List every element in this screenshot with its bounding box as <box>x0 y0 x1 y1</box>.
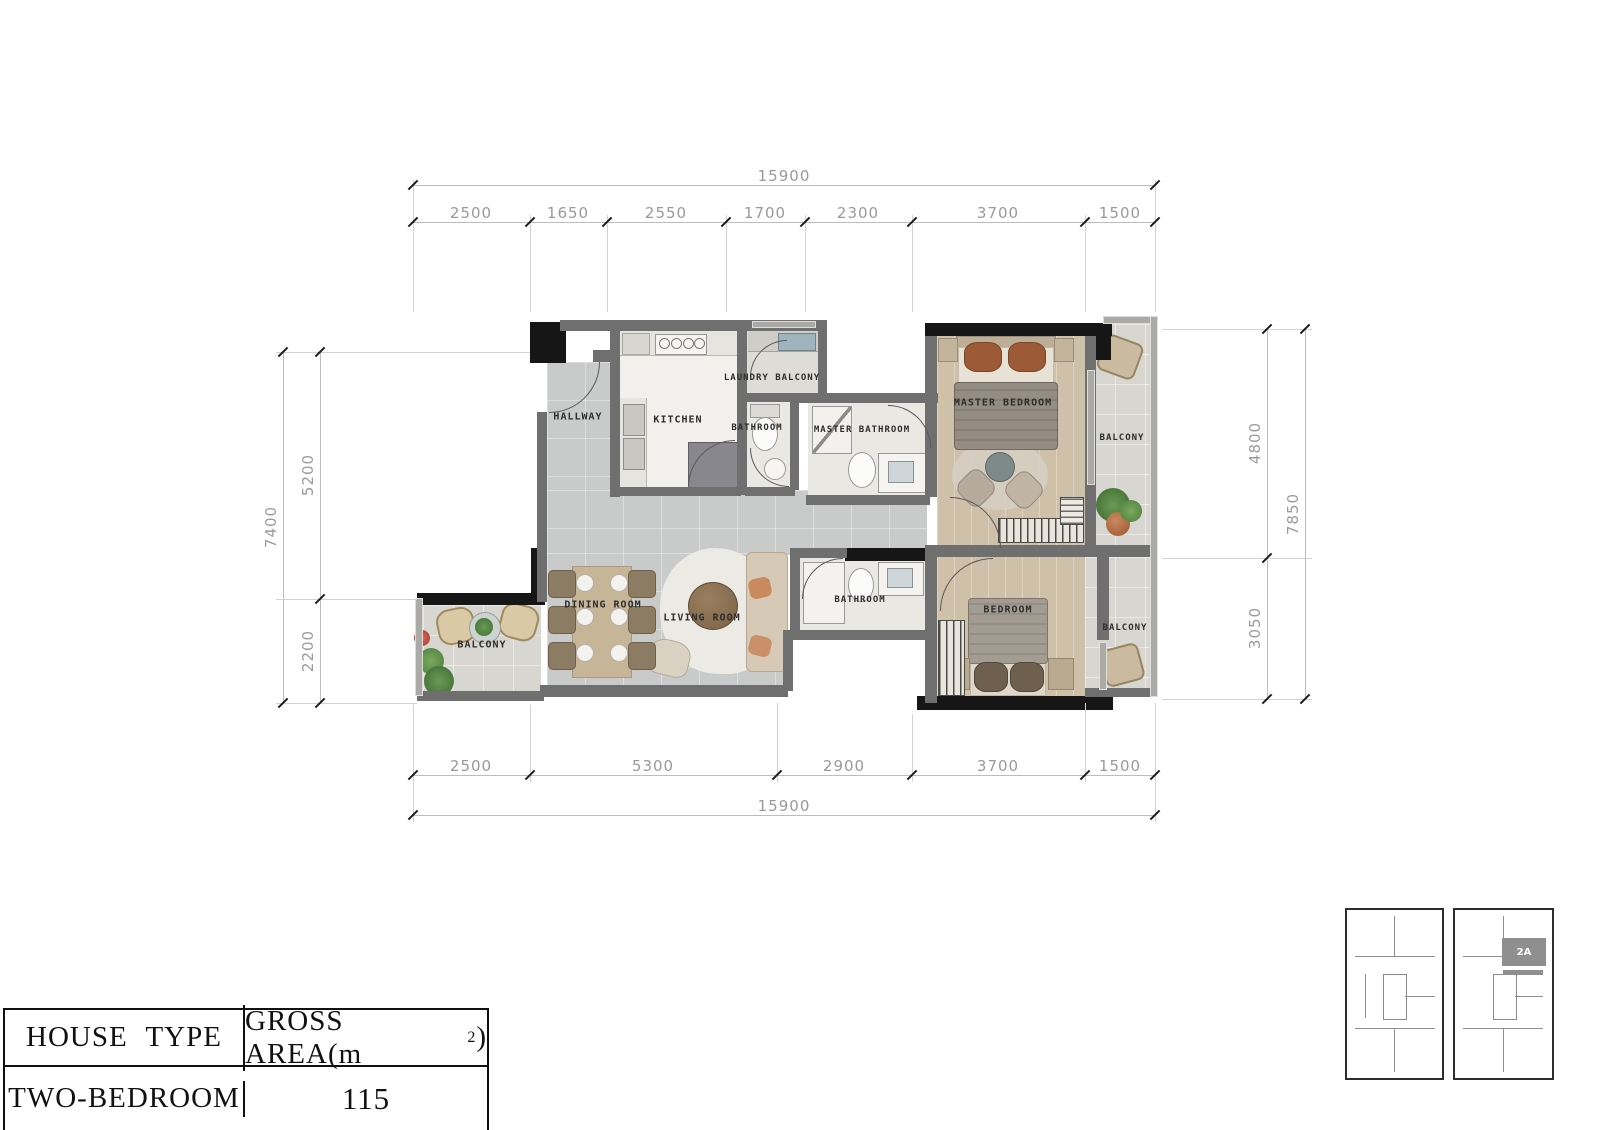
room-label-bathroom-lower: BATHROOM <box>834 595 885 605</box>
extension-line <box>726 215 727 312</box>
kitchen-sink-icon <box>623 438 645 470</box>
room-label-bedroom: BEDROOM <box>983 605 1032 616</box>
nightstand-icon <box>1048 658 1074 690</box>
extension-line <box>1162 558 1312 559</box>
dim-label: 2500 <box>450 204 492 222</box>
wall-segment <box>417 593 544 605</box>
extension-line <box>805 215 806 312</box>
pillow-icon <box>1008 342 1046 372</box>
plate-icon <box>576 644 594 662</box>
floor-plan-page: HALLWAY KITCHEN LAUNDRY BALCONY BATHROOM… <box>0 0 1600 1130</box>
dim-line <box>413 185 1155 186</box>
dim-label: 1500 <box>1099 204 1141 222</box>
pillow-icon <box>1010 662 1044 692</box>
extension-line <box>1085 703 1086 782</box>
house-type-value: TWO-BEDROOM <box>5 1082 243 1115</box>
dining-chair-icon <box>628 642 656 670</box>
burner-icon <box>659 338 670 349</box>
extension-line <box>276 352 530 353</box>
pillow-icon <box>964 342 1002 372</box>
burner-icon <box>694 338 705 349</box>
window-wall <box>752 321 816 328</box>
dim-label: 2200 <box>299 630 317 672</box>
window-wall <box>1150 316 1158 697</box>
dim-label: 15900 <box>758 797 811 815</box>
extension-line <box>530 215 531 312</box>
plant-icon <box>1120 500 1142 522</box>
round-table-icon <box>985 452 1015 482</box>
kitchen-corner-unit <box>622 333 650 355</box>
dim-label: 2550 <box>645 204 687 222</box>
info-table: HOUSE TYPE GROSS AREA(m2) TWO-BEDROOM 11… <box>3 1008 489 1130</box>
room-label-bathroom-upper: BATHROOM <box>731 423 782 433</box>
key-plan-line <box>1394 1028 1395 1072</box>
dim-label: 7850 <box>1284 493 1302 535</box>
highlighted-unit-strip <box>1503 970 1543 975</box>
wall-segment <box>783 636 793 691</box>
window-wall <box>1099 642 1107 690</box>
extension-line <box>1162 329 1312 330</box>
key-plan-building-left <box>1345 908 1444 1080</box>
wall-segment <box>417 691 544 701</box>
dim-label: 3700 <box>977 757 1019 775</box>
plate-icon <box>610 644 628 662</box>
room-label-dining-room: DINING ROOM <box>564 600 641 611</box>
key-plan-line <box>1365 974 1366 1018</box>
extension-line <box>413 705 414 822</box>
key-plan-line <box>1503 1028 1504 1072</box>
dim-label: 4800 <box>1246 422 1264 464</box>
cabinet-icon <box>1060 497 1084 525</box>
extension-line <box>777 703 778 782</box>
dim-line <box>1305 329 1306 699</box>
wardrobe-icon <box>938 620 965 696</box>
key-plan-line <box>1355 1028 1435 1029</box>
room-label-balcony-upper-right: BALCONY <box>1100 433 1145 443</box>
vanity-sink-icon <box>887 568 913 588</box>
key-plan-core <box>1383 974 1407 1020</box>
extension-line <box>912 215 913 312</box>
info-table-value-row: TWO-BEDROOM 115 <box>5 1067 487 1130</box>
plate-icon <box>610 574 628 592</box>
key-plan-line <box>1355 956 1435 957</box>
dim-label: 2300 <box>837 204 879 222</box>
burner-icon <box>683 338 694 349</box>
wall-segment <box>790 556 800 638</box>
dim-label: 5300 <box>632 757 674 775</box>
dining-chair-icon <box>628 570 656 598</box>
room-label-balcony-left: BALCONY <box>457 640 506 651</box>
dim-label: 1700 <box>744 204 786 222</box>
key-plan-line <box>1394 916 1395 956</box>
wall-segment <box>818 320 827 400</box>
key-plan-core <box>1493 974 1517 1020</box>
dim-label: 1650 <box>547 204 589 222</box>
dining-chair-icon <box>548 642 576 670</box>
wall-segment <box>537 412 547 602</box>
wall-segment <box>845 548 937 561</box>
house-type-header: HOUSE TYPE <box>5 1021 243 1054</box>
room-label-master-bathroom: MASTER BATHROOM <box>814 425 910 435</box>
key-plan-line <box>1405 996 1435 997</box>
kitchen-sink-icon <box>623 404 645 436</box>
room-label-hallway: HALLWAY <box>553 412 602 423</box>
dim-label: 2900 <box>823 757 865 775</box>
gross-area-sup: 2 <box>467 1029 476 1047</box>
room-label-kitchen: KITCHEN <box>653 415 702 426</box>
wall-segment <box>610 331 620 497</box>
key-plan: 2A <box>1340 900 1565 1085</box>
wall-segment <box>737 331 747 495</box>
dim-line <box>413 815 1155 816</box>
dim-line <box>1267 329 1268 699</box>
extension-line <box>1155 703 1156 822</box>
plate-icon <box>576 574 594 592</box>
dim-label: 2500 <box>450 757 492 775</box>
gross-area-prefix: GROSS AREA(m <box>245 1005 467 1071</box>
room-label-balcony-lower-right: BALCONY <box>1103 623 1148 633</box>
room-label-master-bedroom: MASTER BEDROOM <box>954 398 1052 409</box>
dim-line <box>320 352 321 703</box>
wall-segment <box>925 555 937 703</box>
extension-line <box>1155 180 1156 312</box>
toilet-tank-icon <box>750 404 780 418</box>
wall-segment <box>1096 330 1111 360</box>
extension-line <box>1162 699 1312 700</box>
toilet-icon <box>848 452 876 488</box>
extension-line <box>276 703 417 704</box>
plant-icon <box>475 618 493 636</box>
window-wall <box>415 598 423 696</box>
wall-segment <box>917 696 1113 710</box>
dim-label: 3700 <box>977 204 1019 222</box>
dining-chair-icon <box>548 570 576 598</box>
wall-segment <box>925 336 937 497</box>
extension-line <box>276 599 417 600</box>
room-label-laundry-balcony: LAUNDRY BALCONY <box>724 373 820 383</box>
plate-icon <box>576 608 594 626</box>
gross-area-value: 115 <box>243 1081 487 1117</box>
room-label-living-room: LIVING ROOM <box>663 613 740 624</box>
dim-line <box>283 352 284 703</box>
key-plan-line <box>1515 996 1543 997</box>
dim-label: 7400 <box>262 506 280 548</box>
blanket <box>954 382 1058 450</box>
burner-icon <box>671 338 682 349</box>
highlighted-unit-2a: 2A <box>1502 938 1546 966</box>
dim-label: 3050 <box>1246 607 1264 649</box>
gross-area-header: GROSS AREA(m2) <box>243 1005 487 1071</box>
wall-segment <box>925 323 1112 336</box>
wall-segment <box>745 487 795 496</box>
extension-line <box>413 180 414 312</box>
extension-line <box>607 215 608 312</box>
dim-label: 15900 <box>758 167 811 185</box>
gross-area-suffix: ) <box>476 1021 487 1054</box>
dim-label: 1500 <box>1099 757 1141 775</box>
pillow-icon <box>974 662 1008 692</box>
info-table-header-row: HOUSE TYPE GROSS AREA(m2) <box>5 1010 487 1067</box>
window-wall <box>1087 370 1095 485</box>
wall-segment <box>1085 688 1158 697</box>
wall-segment <box>790 400 799 490</box>
wall-segment <box>806 495 930 505</box>
nightstand-icon <box>1054 338 1074 362</box>
plate-icon <box>610 608 628 626</box>
dim-line <box>413 775 1155 776</box>
wall-segment <box>798 393 938 403</box>
vanity-sink-icon <box>888 461 914 483</box>
dim-line <box>413 222 1155 223</box>
wall-segment <box>540 685 788 697</box>
extension-line <box>530 705 531 782</box>
extension-line <box>1085 215 1086 312</box>
dim-label: 5200 <box>299 454 317 496</box>
key-plan-building-right: 2A <box>1453 908 1554 1080</box>
wall-segment <box>617 487 741 496</box>
wall-segment <box>783 630 936 640</box>
nightstand-icon <box>938 338 958 362</box>
